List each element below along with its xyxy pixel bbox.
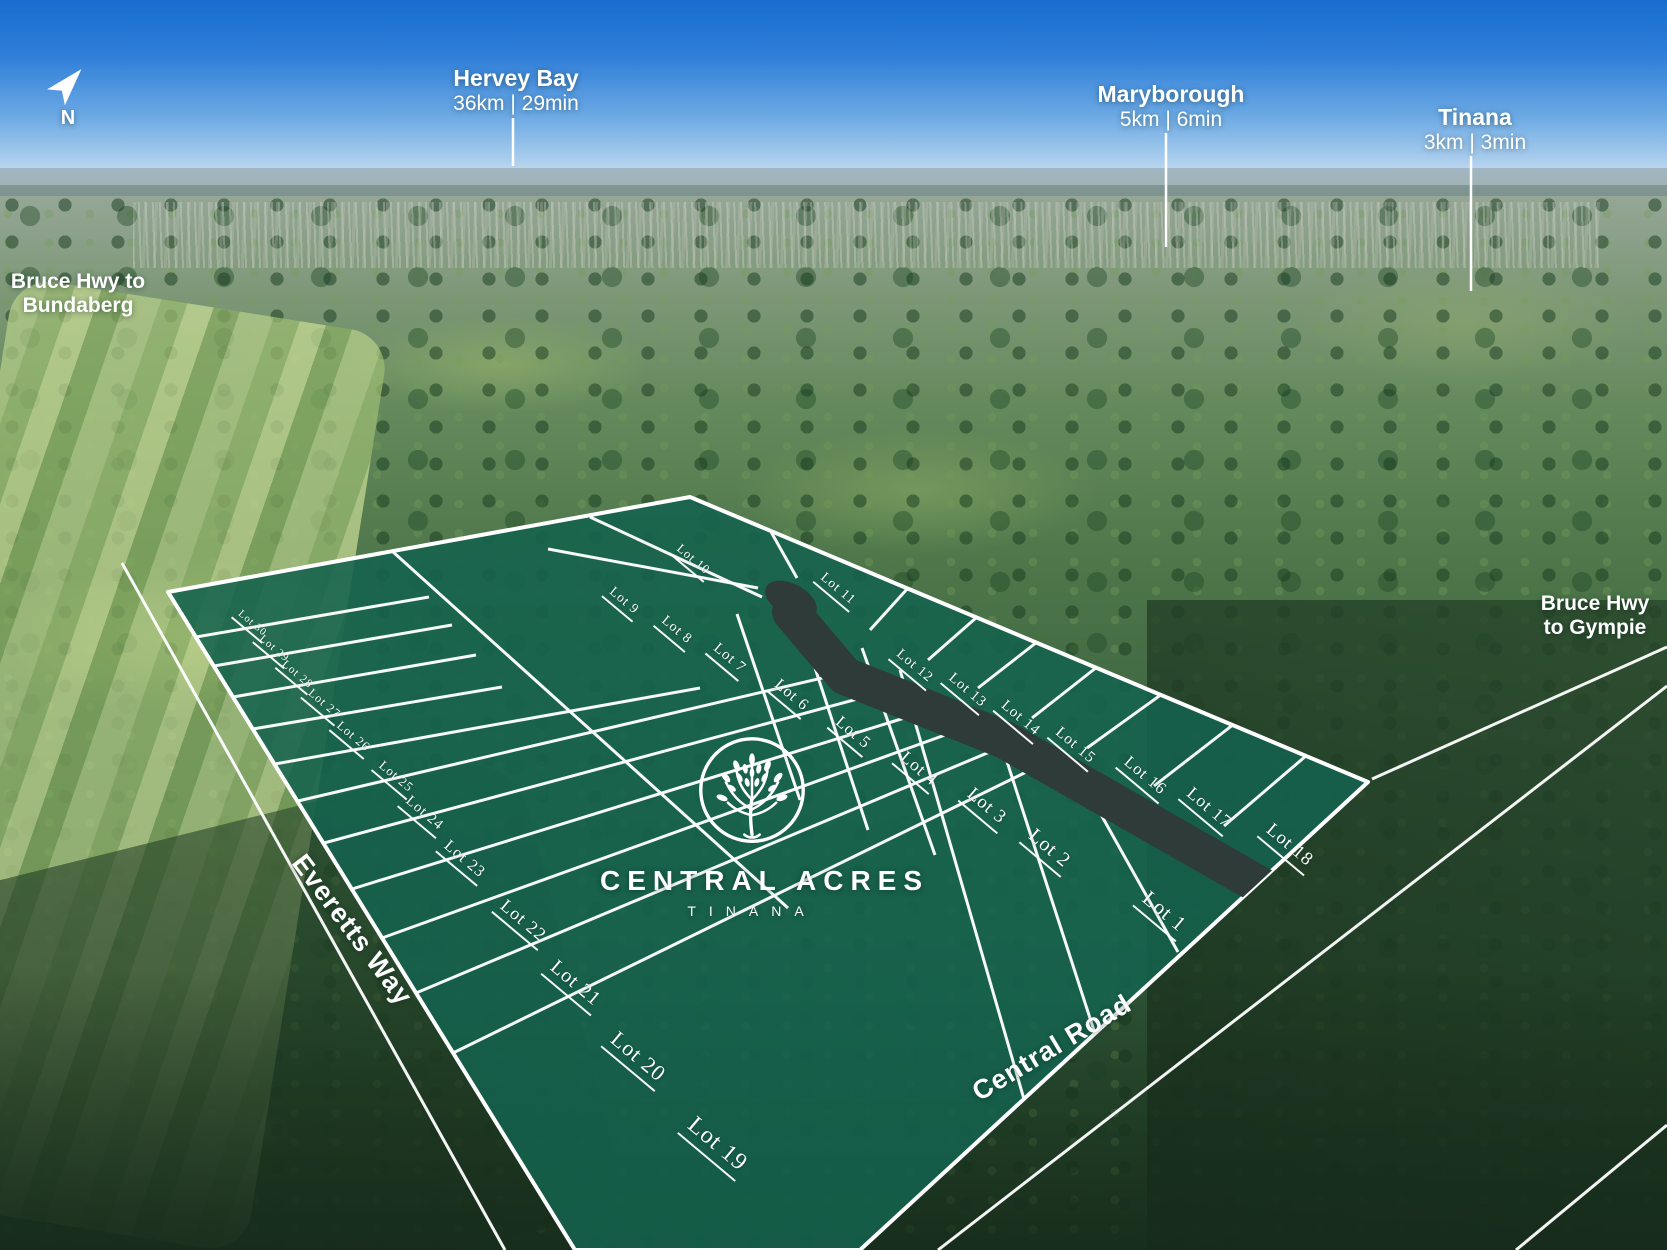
compass-label: N <box>46 107 90 130</box>
hwy-line: Bundaberg <box>11 294 145 318</box>
callout-hervey-bay: Hervey Bay 36km | 29min <box>453 66 579 118</box>
hwy-line: to Gympie <box>1541 616 1650 640</box>
aerial-masterplan-image: N Hervey Bay 36km | 29min Maryborough 5k… <box>0 0 1667 1250</box>
callout-pointer-lines <box>513 118 1471 291</box>
hwy-line: Bruce Hwy to <box>11 270 145 294</box>
callout-title: Hervey Bay <box>453 66 579 91</box>
tree-emblem-icon <box>694 732 810 854</box>
callout-distance: 5km | 6min <box>1098 107 1245 133</box>
callout-maryborough: Maryborough 5km | 6min <box>1098 82 1245 134</box>
logo-subtitle: TINANA <box>600 903 904 919</box>
label-bruce-hwy-bundaberg: Bruce Hwy to Bundaberg <box>11 270 145 318</box>
north-arrow-icon <box>46 62 90 106</box>
logo-wordmark: CENTRAL ACRES <box>600 865 904 897</box>
callout-tinana: Tinana 3km | 3min <box>1424 105 1526 157</box>
callout-title: Maryborough <box>1098 82 1245 107</box>
label-bruce-hwy-gympie: Bruce Hwy to Gympie <box>1541 592 1650 640</box>
north-compass: N <box>46 62 90 130</box>
hwy-line: Bruce Hwy <box>1541 592 1650 616</box>
callout-distance: 3km | 3min <box>1424 130 1526 156</box>
callout-title: Tinana <box>1424 105 1526 130</box>
callout-distance: 36km | 29min <box>453 91 579 117</box>
estate-logo: CENTRAL ACRES TINANA <box>600 732 904 919</box>
